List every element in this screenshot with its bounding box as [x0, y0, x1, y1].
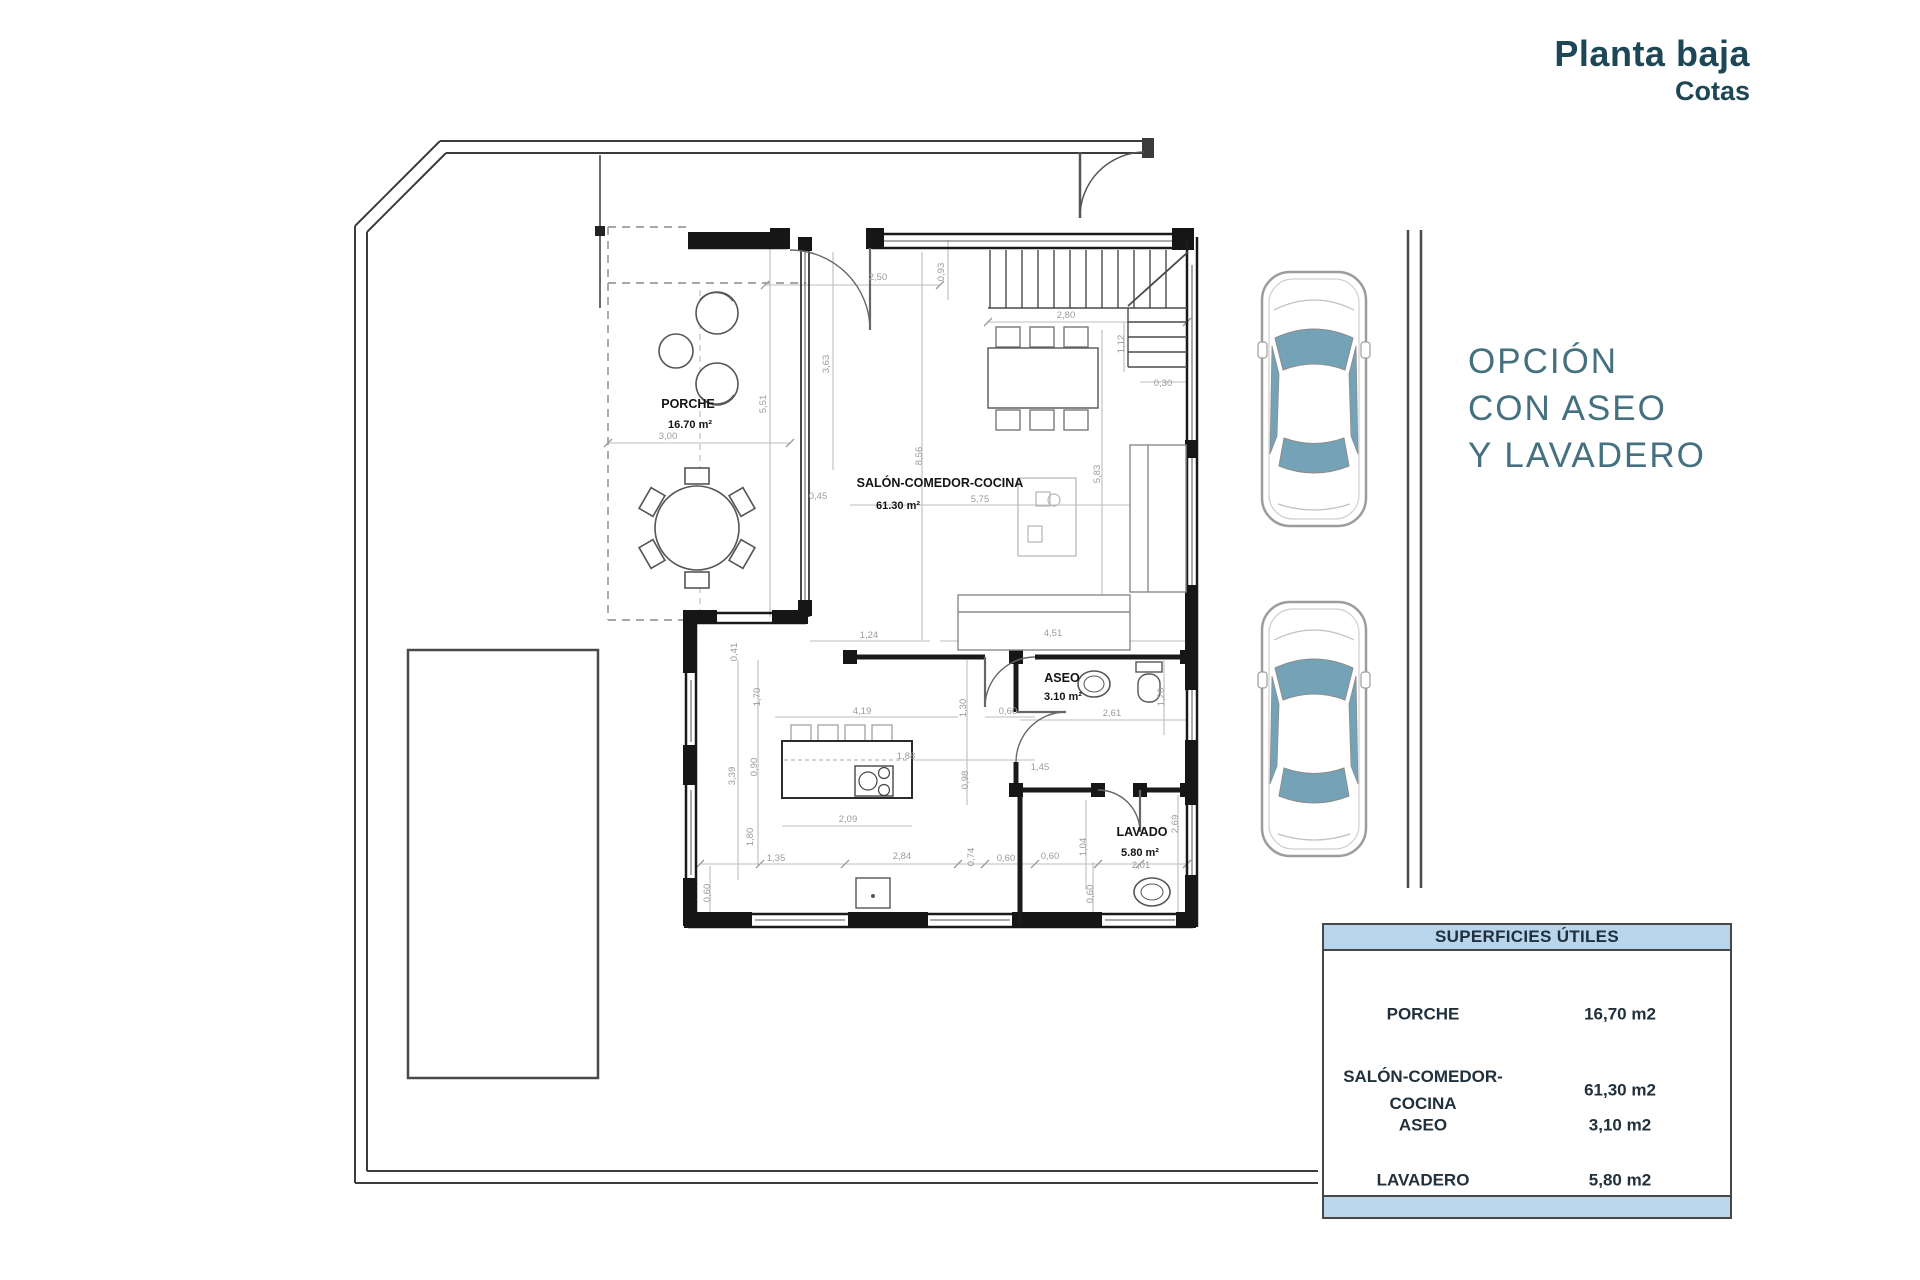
entry-gate: [1080, 152, 1145, 218]
dimension-label: 1,04: [1078, 838, 1089, 857]
coffee-table: [1018, 478, 1076, 556]
dimension-label: 2,69: [1170, 815, 1181, 834]
dimension-label: 1,30: [958, 699, 969, 718]
dimension-label: 0,74: [966, 848, 977, 867]
dimension-label: 2,61: [1103, 708, 1122, 719]
dimension-label: 1,70: [752, 688, 763, 707]
row-label: PORCHE: [1330, 1001, 1516, 1028]
row-label: LAVADERO: [1330, 1167, 1516, 1194]
dimension-label: 0,60: [997, 853, 1016, 864]
dimension-label: 2,80: [1057, 310, 1076, 321]
room-area-label: 61.30 m²: [876, 500, 920, 512]
row-value: 16,70 m2: [1540, 1001, 1700, 1028]
dimension-label: 5,75: [971, 494, 990, 505]
kitchen-island: [782, 725, 912, 798]
room-name-label: ASEO: [1044, 671, 1080, 685]
dimension-label: 5,83: [1092, 465, 1103, 484]
row-label: SALÓN-COMEDOR-COCINA: [1330, 1063, 1516, 1117]
surfaces-table-header: SUPERFICIES ÚTILES: [1324, 925, 1730, 951]
room-area-label: 5.80 m²: [1121, 847, 1159, 859]
laundry-sink: [1134, 878, 1170, 906]
car-icon-1: [1258, 272, 1370, 526]
surfaces-table-body: PORCHE 16,70 m2 SALÓN-COMEDOR-COCINA 61,…: [1324, 951, 1730, 1217]
dining-table: [988, 327, 1098, 430]
surfaces-table: SUPERFICIES ÚTILES PORCHE 16,70 m2 SALÓN…: [1322, 923, 1732, 1219]
dimension-label: 0,93: [936, 263, 947, 282]
room-name-label: PORCHE: [661, 397, 714, 411]
dimension-label: 2,50: [869, 272, 888, 283]
dimension-label: 4,51: [1044, 628, 1063, 639]
floor-plan-page: { "header": { "title": "Planta baja", "s…: [0, 0, 1920, 1280]
pool: [408, 650, 598, 1078]
room-area-label: 16.70 m²: [668, 419, 712, 431]
dimension-label: 1,24: [860, 630, 879, 641]
dimension-label: 0,60: [702, 884, 713, 903]
dimension-labels: 2,500,932,801,120,303,635,513,000,458,56…: [659, 263, 1181, 904]
dimension-label: 1,88: [897, 751, 916, 762]
dimension-label: 1,20: [1156, 688, 1167, 707]
dimension-label: 0,60: [999, 706, 1018, 717]
option-note-line: OPCIÓN: [1468, 338, 1706, 385]
row-value: 3,10 m2: [1540, 1112, 1700, 1139]
aseo-fixtures: [1078, 662, 1162, 702]
room-area-label: 3.10 m²: [1044, 691, 1082, 703]
title-block: Planta baja Cotas: [1554, 34, 1750, 106]
page-subtitle: Cotas: [1554, 76, 1750, 106]
room-name-label: LAVADO: [1117, 825, 1168, 839]
dimension-label: 2,01: [1132, 860, 1151, 871]
row-label: ASEO: [1330, 1112, 1516, 1139]
site-boundary: [355, 139, 1318, 1183]
dimension-label: 4,19: [853, 706, 872, 717]
oven: [856, 878, 890, 908]
dimension-label: 1,80: [745, 828, 756, 847]
option-note: OPCIÓNCON ASEOY LAVADERO: [1468, 338, 1706, 479]
dimension-label: 0,60: [1085, 885, 1096, 904]
dimension-label: 2,84: [893, 851, 912, 862]
dimension-label: 5,51: [758, 395, 769, 414]
dimension-label: 0,41: [729, 643, 740, 662]
page-title: Planta baja: [1554, 34, 1750, 74]
building-walls: [683, 228, 1197, 928]
row-value: 5,80 m2: [1540, 1167, 1700, 1194]
dimension-label: 3,00: [659, 431, 678, 442]
car-icon-2: [1258, 602, 1370, 856]
dimension-label: 3,63: [821, 355, 832, 374]
dimension-label: 0,45: [809, 491, 828, 502]
dimension-label: 1,12: [1116, 335, 1127, 354]
option-note-line: Y LAVADERO: [1468, 432, 1706, 479]
dimension-label: 3,39: [727, 767, 738, 786]
dimension-label: 8,56: [914, 447, 925, 466]
road-lines: [1408, 230, 1421, 888]
dimension-label: 0,60: [1041, 851, 1060, 862]
dimension-label: 0,98: [960, 771, 971, 790]
dimension-label: 1,35: [767, 853, 786, 864]
option-note-line: CON ASEO: [1468, 385, 1706, 432]
fence-line: [595, 155, 605, 308]
porch-furniture: [639, 292, 755, 588]
dimension-label: 2,09: [839, 814, 858, 825]
row-value: 61,30 m2: [1540, 1077, 1700, 1104]
dimension-label: 0,30: [1154, 378, 1173, 389]
table-footer-band: [1324, 1195, 1730, 1217]
dimension-label: 0,90: [749, 758, 760, 777]
room-name-label: SALÓN-COMEDOR-COCINA: [857, 475, 1024, 490]
dimension-label: 1,45: [1031, 762, 1050, 773]
